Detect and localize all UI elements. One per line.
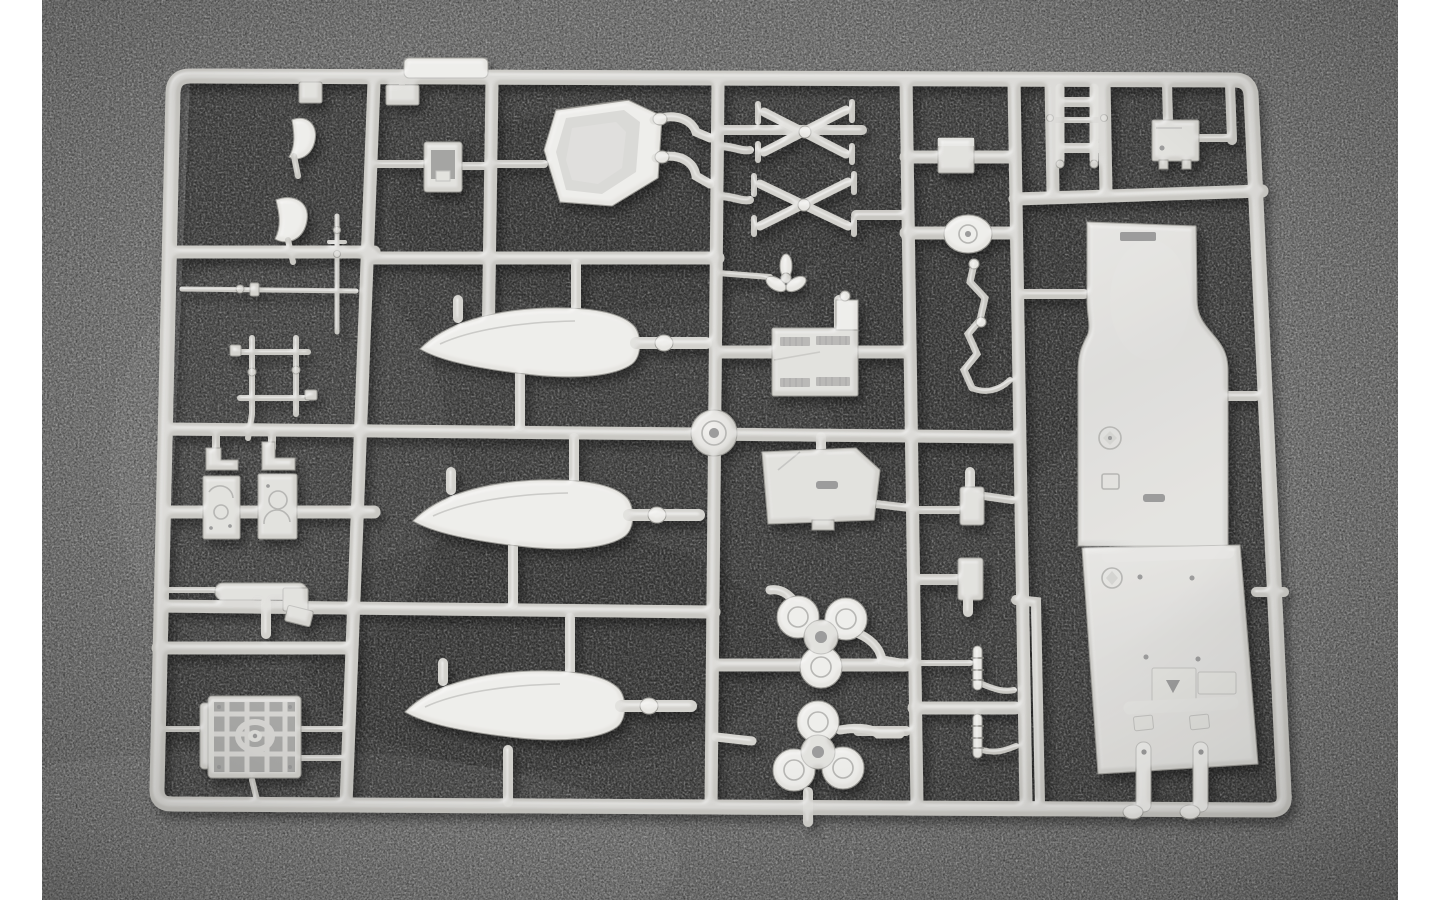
left-margin xyxy=(0,0,42,900)
photo-of-model-sprue xyxy=(0,0,1440,900)
vignette xyxy=(42,0,1398,900)
sprue-photo-canvas xyxy=(0,0,1440,900)
right-margin xyxy=(1398,0,1440,900)
